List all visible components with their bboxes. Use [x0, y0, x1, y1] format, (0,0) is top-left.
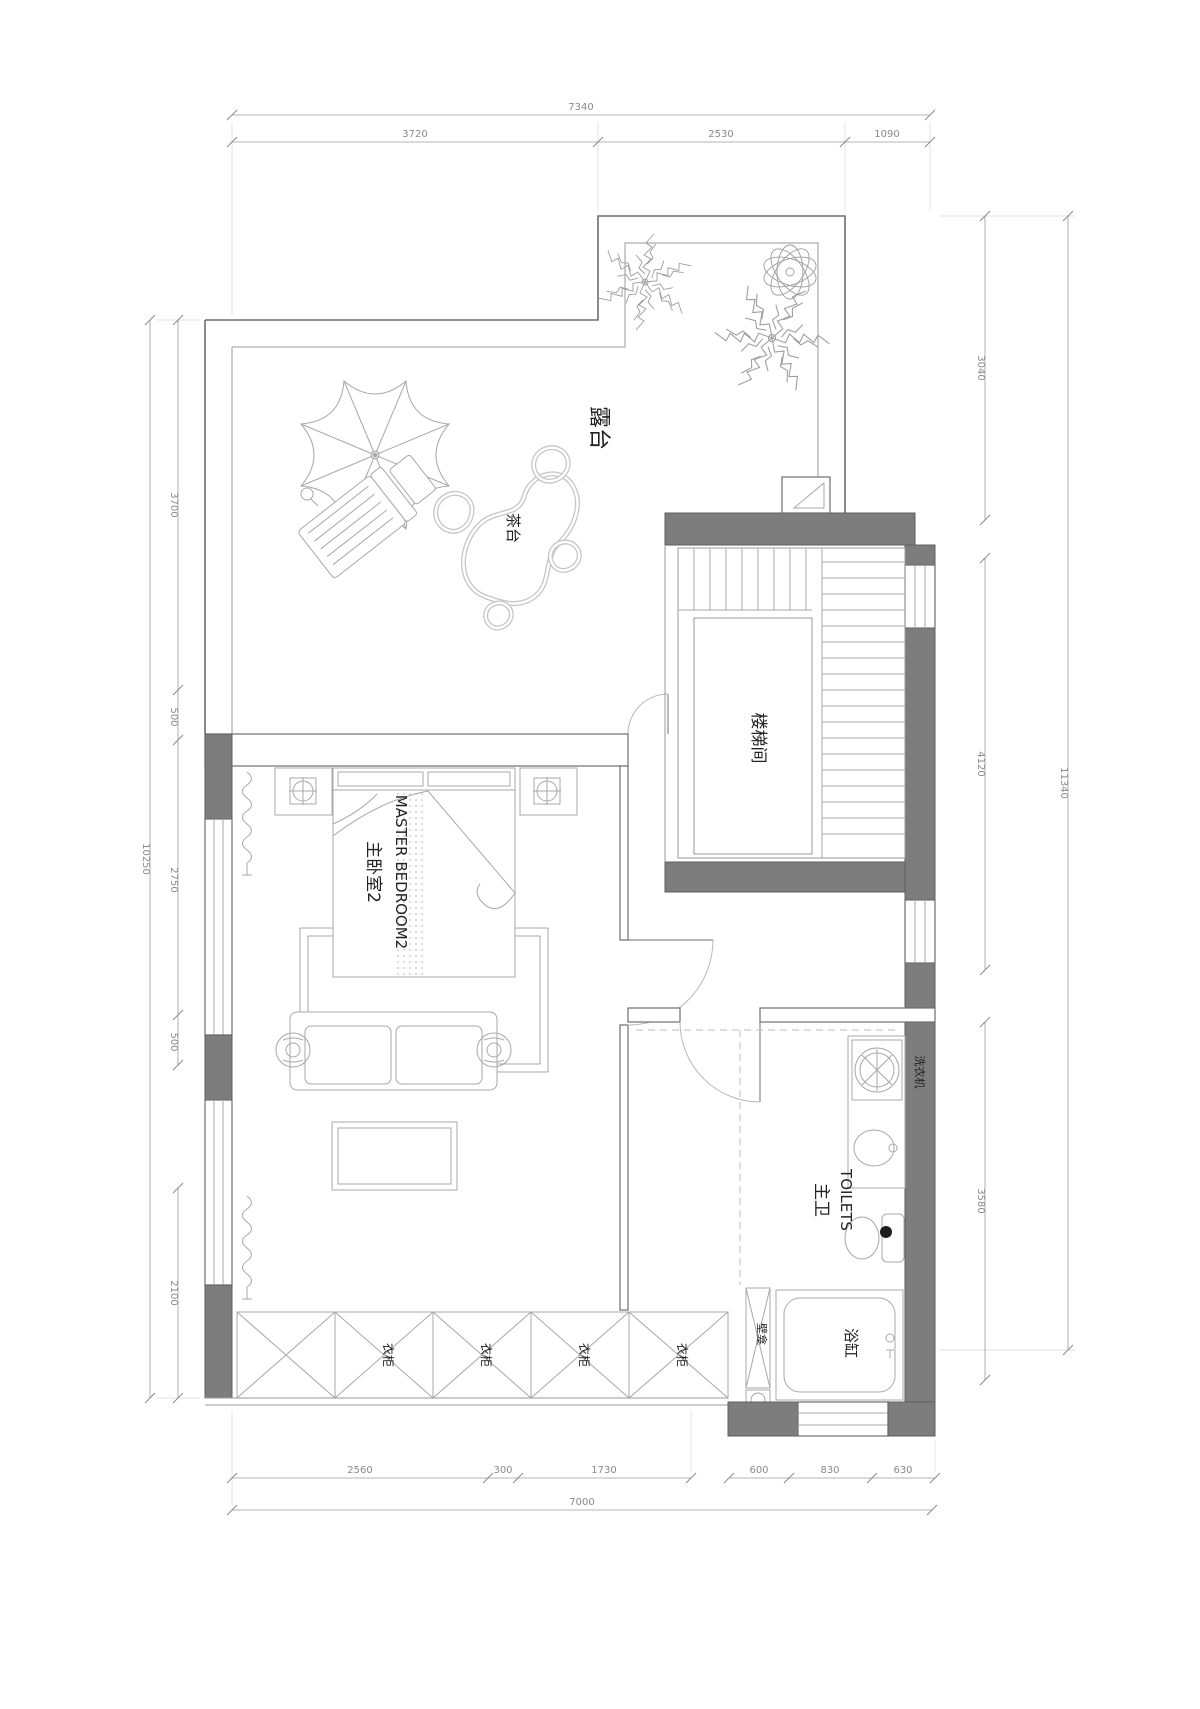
flower-icon — [760, 243, 819, 302]
niche: 壁龛 — [746, 1288, 770, 1388]
dim-top-seg-2: 2530 — [708, 129, 733, 140]
sofa — [276, 1012, 511, 1090]
terrace-parapet-outer — [205, 216, 845, 513]
wardrobe-label: 衣柜 — [675, 1343, 690, 1367]
dim-bottom-seg-6: 630 — [893, 1465, 912, 1476]
bath-bottom-wall — [888, 1402, 935, 1436]
stair-treads-right — [822, 548, 905, 858]
bedroom-area: 主卧室2 MASTER BEDROOM2 衣柜 衣柜 衣柜 衣柜 — [205, 734, 728, 1405]
dim-right-seg-3: 3580 — [975, 1188, 986, 1213]
dim-left-seg-5: 2100 — [168, 1280, 179, 1305]
stair-treads-top — [678, 548, 812, 610]
curtain-icon — [242, 772, 252, 875]
bathroom-door — [680, 1022, 760, 1102]
wardrobe-label: 衣柜 — [577, 1343, 592, 1367]
hall-window — [905, 900, 935, 963]
washing-machine-icon — [852, 1040, 902, 1100]
stair-bottom-wall — [665, 862, 905, 892]
niche-label: 壁龛 — [755, 1323, 769, 1345]
bathtub-icon: 浴缸 — [776, 1290, 903, 1400]
dim-bottom-seg-1: 2560 — [347, 1465, 372, 1476]
tea-table-label: 茶台 — [504, 513, 522, 543]
tree-icon — [598, 234, 692, 330]
bathtub-label: 浴缸 — [842, 1328, 860, 1358]
washing-machine-label: 洗衣机 — [913, 1056, 927, 1089]
dim-bottom-seg-4: 600 — [749, 1465, 768, 1476]
bedroom-top-wall — [205, 734, 628, 766]
dim-left-seg-1: 3700 — [168, 492, 179, 517]
nightstand — [520, 768, 577, 815]
wardrobe-label: 衣柜 — [381, 1343, 396, 1367]
bathroom-label-cn: 主卫 — [811, 1183, 831, 1217]
bed — [333, 768, 515, 977]
bedroom-label-en: MASTER BEDROOM2 — [392, 795, 410, 949]
stair-top-wall — [665, 513, 915, 545]
dim-bottom-seg-5: 830 — [820, 1465, 839, 1476]
dim-left-seg-2: 500 — [168, 707, 179, 726]
stairwell-label: 楼梯间 — [748, 713, 768, 764]
dim-top-seg-3: 1090 — [874, 129, 899, 140]
bath-top-wall — [628, 1008, 680, 1022]
dim-right-seg-1: 3040 — [975, 355, 986, 380]
dim-left-seg-4: 500 — [168, 1032, 179, 1051]
dim-top-seg-1: 3720 — [402, 129, 427, 140]
bedroom-window-lower — [205, 1100, 232, 1285]
terrace-door — [628, 694, 668, 734]
roof-drain-icon — [782, 477, 830, 513]
dim-bottom-seg-3: 1730 — [591, 1465, 616, 1476]
wardrobe-row: 衣柜 衣柜 衣柜 衣柜 — [237, 1312, 728, 1398]
dim-right-seg-2: 4120 — [975, 751, 986, 776]
dimension-chain-left: 10250 3700 500 2750 500 2100 — [140, 315, 200, 1403]
terrace-area: 露台 茶台 — [205, 216, 846, 734]
coffee-table — [332, 1122, 457, 1190]
dim-bottom-overall: 7000 — [569, 1497, 594, 1508]
stair-window — [905, 565, 935, 628]
dim-top-overall: 7340 — [568, 102, 593, 113]
floor-plan-drawing: 7340 3720 2530 1090 2560 300 1730 600 83… — [0, 0, 1200, 1709]
bedroom-window-upper — [205, 819, 232, 1035]
terrace-parapet-inner — [232, 243, 818, 513]
dim-bottom-seg-2: 300 — [493, 1465, 512, 1476]
wardrobe-label: 衣柜 — [479, 1343, 494, 1367]
dim-left-overall: 10250 — [140, 843, 151, 875]
bath-bottom-wall — [728, 1402, 798, 1436]
bath-top-wall — [760, 1008, 935, 1022]
bath-bottom-window — [798, 1402, 888, 1436]
dimension-chain-right: 3040 4120 3580 11340 — [940, 211, 1075, 1385]
right-outer-wall — [905, 545, 935, 1402]
bedroom-right-wall — [620, 766, 628, 940]
curtain-icon — [242, 1196, 252, 1299]
tree-icon — [698, 263, 847, 413]
left-wall-pier — [205, 734, 232, 819]
left-wall-pier — [205, 1285, 232, 1398]
left-wall-pier — [205, 1035, 232, 1100]
nightstand — [275, 768, 332, 815]
dim-left-seg-3: 2750 — [168, 867, 179, 892]
bedroom-right-wall — [620, 1025, 628, 1310]
dim-right-overall: 11340 — [1058, 767, 1069, 799]
floor-plan-page: 7340 3720 2530 1090 2560 300 1730 600 83… — [0, 0, 1200, 1709]
bathroom-label-en: TOILETS — [837, 1168, 855, 1231]
dimension-chain-top: 7340 3720 2530 1090 — [227, 102, 935, 315]
bedroom-label-cn: 主卧室2 — [363, 841, 383, 903]
terrace-label: 露台 — [586, 406, 611, 450]
